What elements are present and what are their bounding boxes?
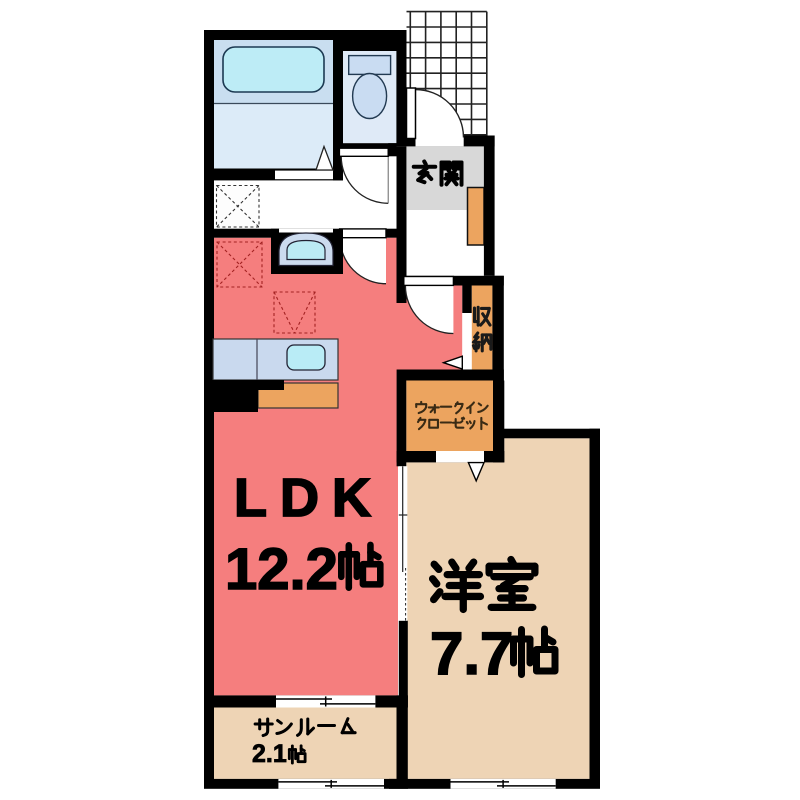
svg-text:2.1: 2.1 (252, 740, 287, 768)
svg-text:12.2: 12.2 (225, 537, 338, 602)
svg-text:7.7: 7.7 (430, 620, 513, 687)
svg-text:LDK: LDK (234, 468, 384, 528)
